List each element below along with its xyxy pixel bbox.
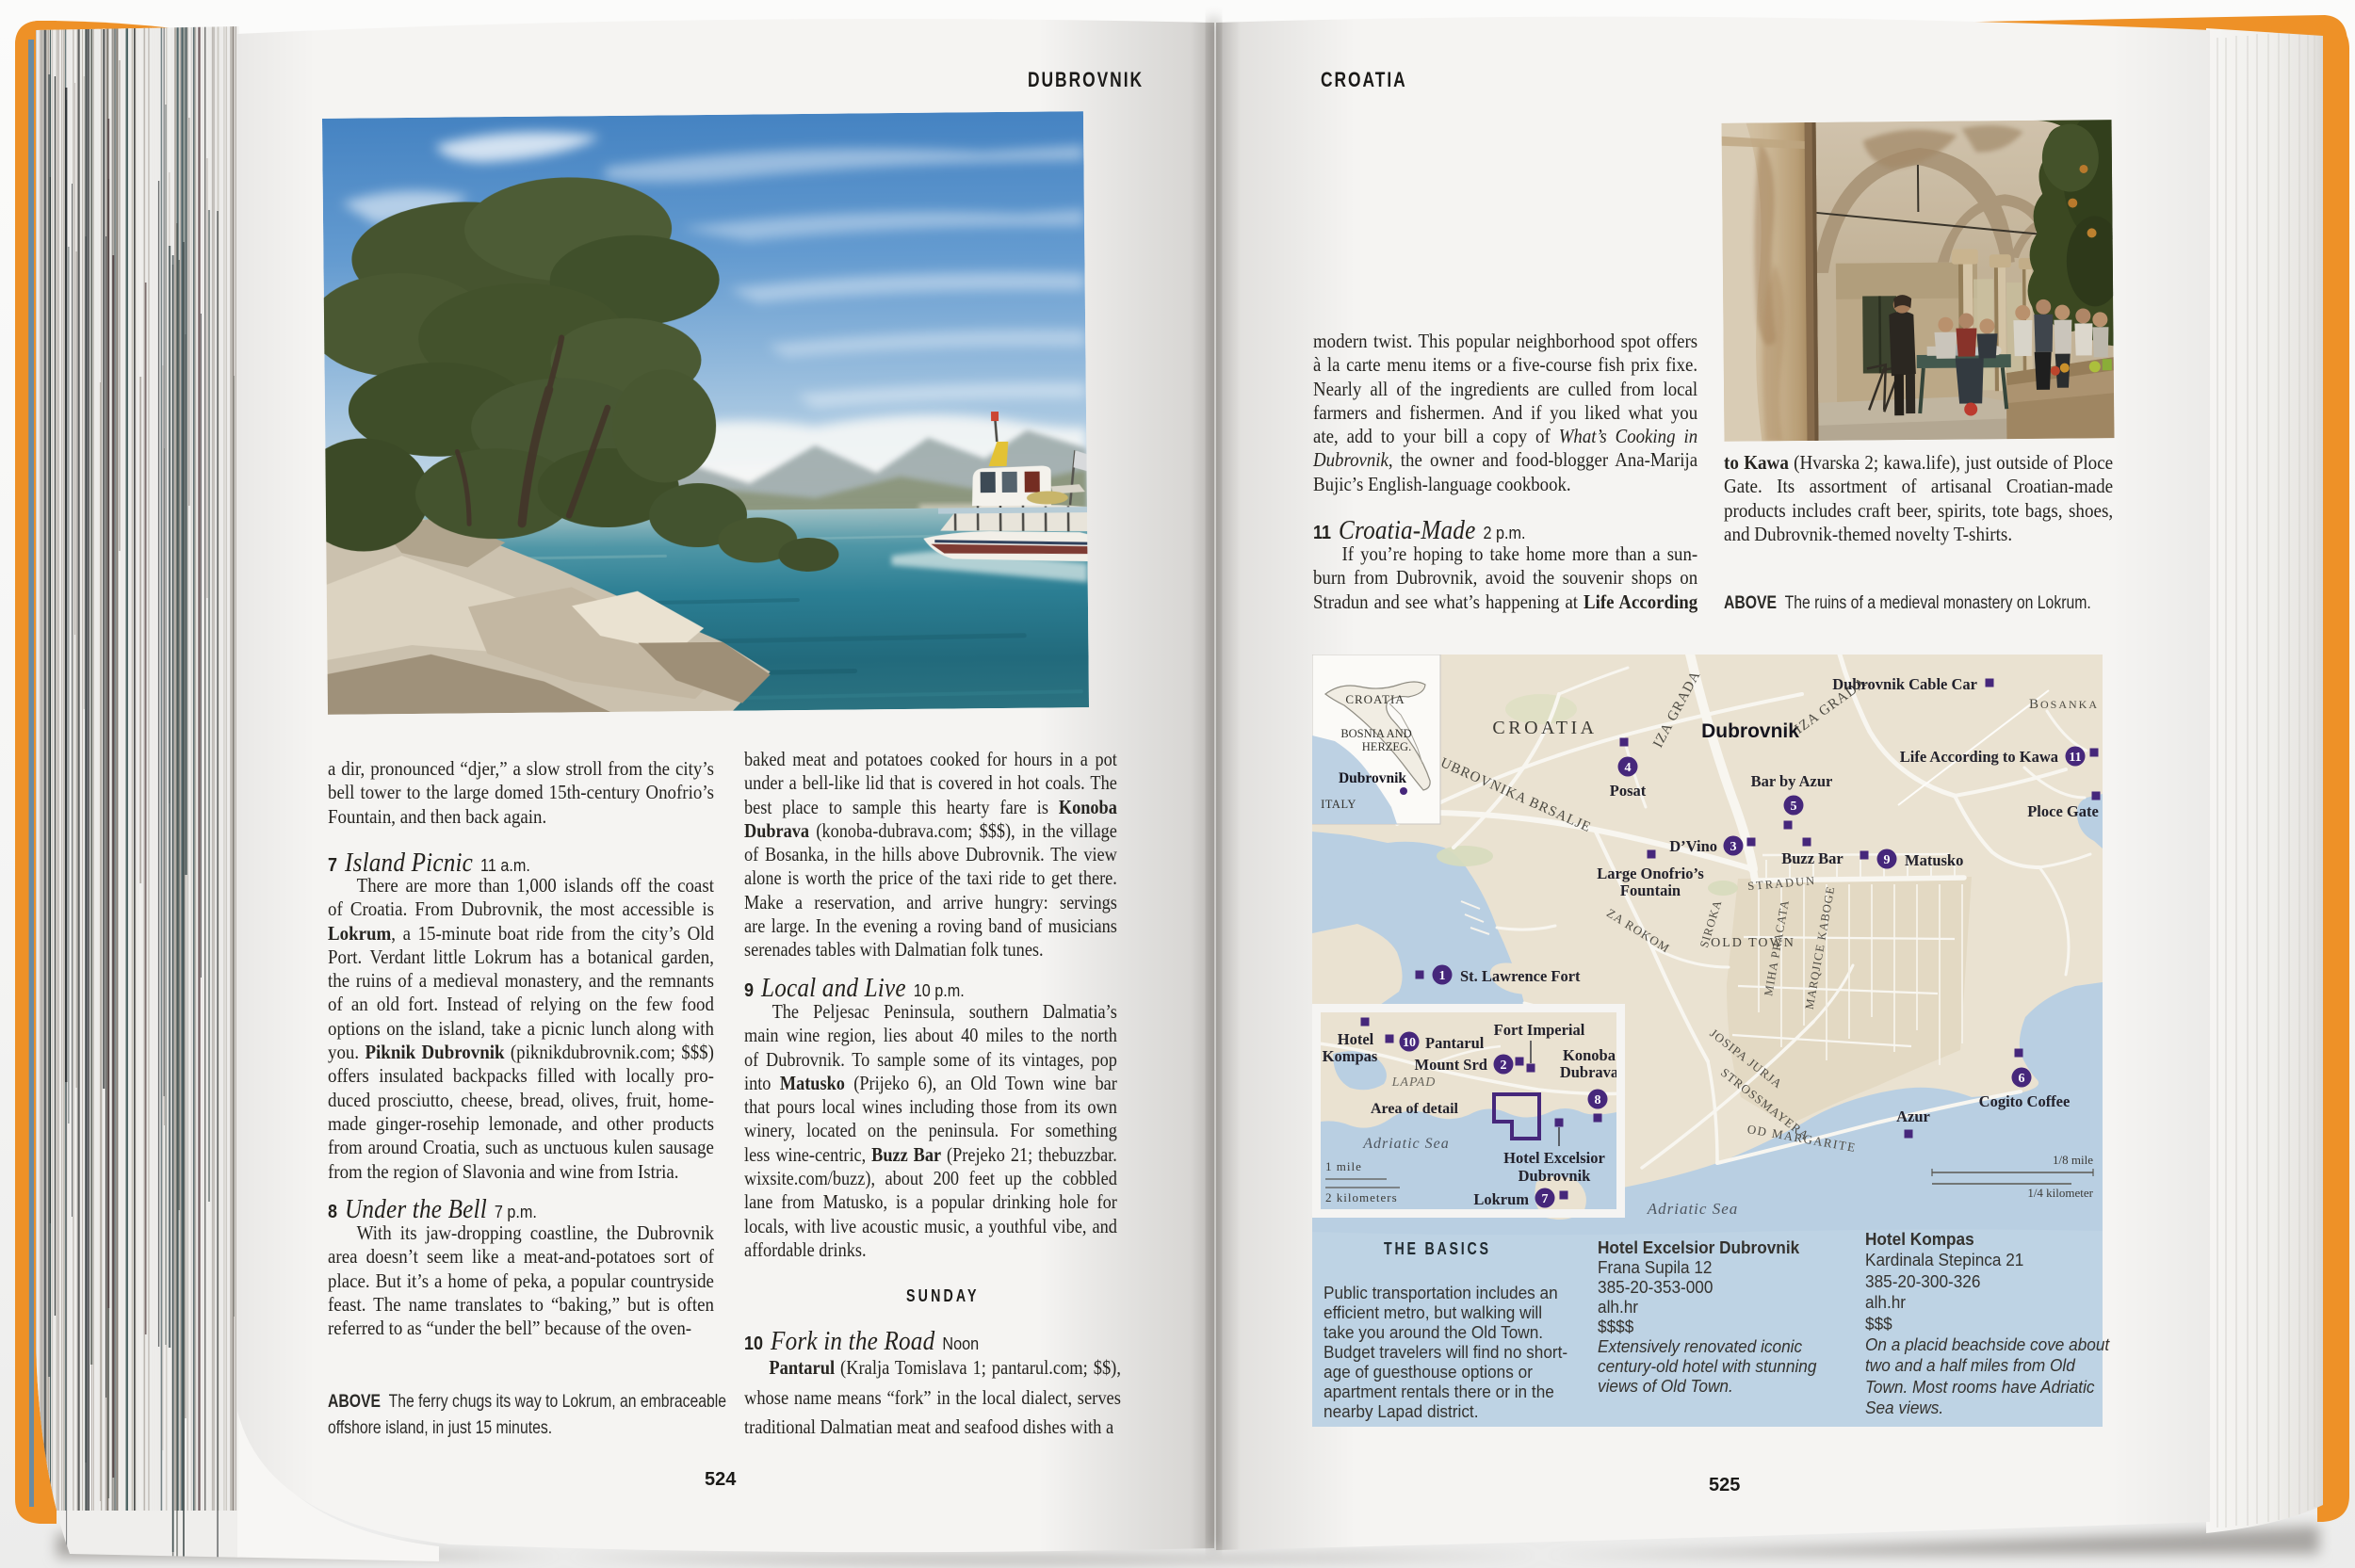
svg-text:2: 2 — [1501, 1059, 1507, 1073]
svg-text:Dubrovnik Cable Car: Dubrovnik Cable Car — [1832, 675, 1977, 693]
svg-text:4: 4 — [1625, 761, 1632, 775]
svg-text:BOSANKA: BOSANKA — [2029, 697, 2099, 712]
svg-text:Dubrovnik: Dubrovnik — [1701, 720, 1799, 742]
svg-text:Dubrava: Dubrava — [1560, 1063, 1618, 1081]
svg-text:Mount Srd: Mount Srd — [1415, 1056, 1487, 1074]
svg-text:Matusko: Matusko — [1905, 851, 1963, 869]
svg-text:Posat: Posat — [1610, 782, 1647, 800]
svg-text:Kompas: Kompas — [1323, 1047, 1378, 1065]
svg-text:Adriatic Sea: Adriatic Sea — [1362, 1136, 1450, 1152]
svg-text:Fort Imperial: Fort Imperial — [1494, 1021, 1585, 1039]
svg-text:1/8 mile: 1/8 mile — [2053, 1153, 2093, 1167]
svg-text:CROATIA: CROATIA — [1345, 692, 1405, 706]
svg-text:Cogito Coffee: Cogito Coffee — [1979, 1092, 2071, 1110]
svg-text:Life According to Kawa: Life According to Kawa — [1900, 748, 2058, 766]
svg-text:Hotel Excelsior: Hotel Excelsior — [1503, 1149, 1605, 1167]
svg-text:Hotel: Hotel — [1338, 1030, 1374, 1048]
svg-text:9: 9 — [1884, 853, 1891, 867]
svg-text:Lokrum: Lokrum — [1473, 1190, 1529, 1208]
svg-text:Azur: Azur — [1896, 1107, 1930, 1125]
svg-text:Ploce Gate: Ploce Gate — [2027, 802, 2099, 820]
svg-text:3: 3 — [1730, 840, 1737, 854]
svg-text:Bar by Azur: Bar by Azur — [1751, 772, 1833, 790]
svg-text:D’Vino: D’Vino — [1669, 837, 1717, 855]
svg-text:Dubrovnik: Dubrovnik — [1339, 770, 1406, 786]
svg-text:Fountain: Fountain — [1620, 881, 1681, 899]
svg-text:8: 8 — [1595, 1093, 1601, 1107]
svg-text:7: 7 — [1542, 1192, 1549, 1206]
svg-text:BOSNIA AND: BOSNIA AND — [1340, 727, 1411, 740]
svg-text:Large Onofrio’s: Large Onofrio’s — [1597, 865, 1704, 882]
svg-text:5: 5 — [1791, 800, 1797, 814]
svg-text:St. Lawrence Fort: St. Lawrence Fort — [1460, 967, 1581, 985]
svg-text:6: 6 — [2019, 1072, 2025, 1086]
svg-text:ITALY: ITALY — [1321, 798, 1356, 811]
svg-text:Pantarul: Pantarul — [1425, 1034, 1485, 1052]
svg-text:2 kilometers: 2 kilometers — [1325, 1190, 1398, 1204]
svg-text:11: 11 — [2069, 751, 2081, 765]
svg-text:HERZEG.: HERZEG. — [1362, 740, 1411, 753]
svg-text:1 mile: 1 mile — [1325, 1159, 1362, 1173]
svg-text:10: 10 — [1403, 1036, 1416, 1050]
svg-text:Area of detail: Area of detail — [1371, 1101, 1459, 1117]
svg-text:1: 1 — [1439, 969, 1446, 983]
svg-text:1/4 kilometer: 1/4 kilometer — [2027, 1186, 2093, 1200]
svg-text:CROATIA: CROATIA — [1492, 718, 1597, 738]
svg-text:Dubrovnik: Dubrovnik — [1519, 1167, 1592, 1185]
svg-text:Konoba: Konoba — [1563, 1046, 1616, 1064]
svg-text:Adriatic Sea: Adriatic Sea — [1647, 1200, 1739, 1218]
svg-text:LAPAD: LAPAD — [1391, 1075, 1437, 1090]
svg-text:Buzz Bar: Buzz Bar — [1781, 849, 1843, 867]
